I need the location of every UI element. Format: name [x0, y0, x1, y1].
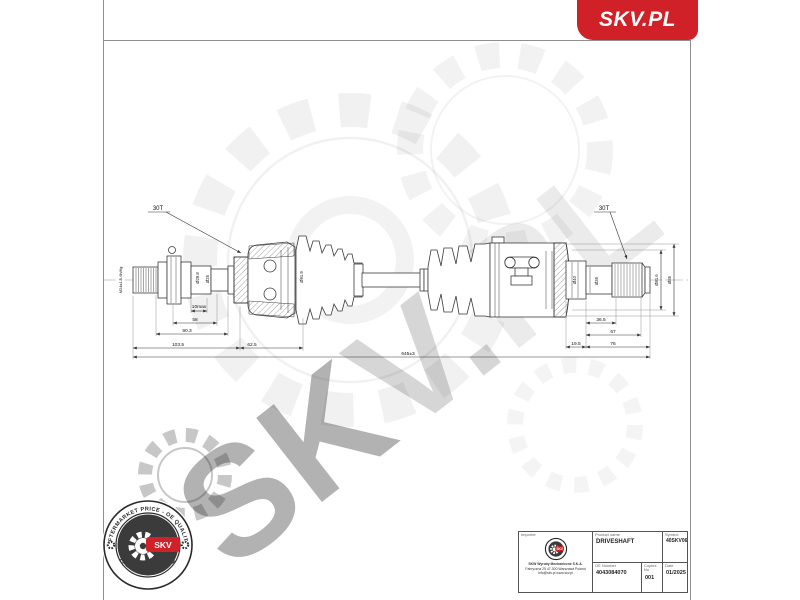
- brand-logo: SKV.PL: [577, 0, 698, 40]
- dim-103-5: 103.5: [172, 342, 184, 348]
- dia-stub-2: Ø35: [594, 276, 599, 285]
- dim-19-5: 19.5: [571, 341, 581, 347]
- brand-logo-text: SKV.PL: [599, 8, 676, 32]
- copies-value: 001: [642, 573, 662, 583]
- title-block: Importer SKV SKW Wyroby Mechaniczne S.K.…: [518, 531, 688, 593]
- dim-67: 67: [610, 329, 616, 335]
- company-line-3: info@skv.pl www.skv.pl: [519, 571, 592, 575]
- dia-shaft-2: Ø25: [205, 274, 210, 283]
- title-block-importer-cell: Importer SKV SKW Wyroby Mechaniczne S.K.…: [519, 532, 592, 592]
- dia-shaft-1: Ø29.8: [195, 272, 200, 284]
- title-block-date-cell: Date 01/2025: [662, 562, 687, 592]
- title-block-copies-cell: Copies No 001: [641, 562, 662, 592]
- dia-stub-1: Ø40: [572, 275, 577, 284]
- title-block-logo-text: SKV: [556, 547, 563, 551]
- oe-number-value: 4043084070: [593, 568, 641, 578]
- quality-badge: AFTERMARKET PRICE - OE QUALITY AUTO PART…: [90, 488, 212, 600]
- dim-58: 58: [192, 317, 198, 323]
- dim-overall-length: 645±3: [401, 351, 415, 357]
- title-block-symbol-cell: Symbol 40SKV065: [662, 532, 687, 562]
- title-block-product-cell: Product name DRIVESHAFT: [592, 532, 662, 562]
- dim-62-5: 62.5: [247, 342, 257, 348]
- dia-boot: Ø91.9: [299, 271, 304, 283]
- badge-center-text: SKV: [154, 540, 172, 550]
- product-name-value: DRIVESHAFT: [593, 537, 662, 548]
- dia-joint-2: Ø85: [667, 275, 672, 284]
- spline-count-left: 30T: [153, 206, 164, 212]
- title-block-oe-cell: OE Number 4043084070: [592, 562, 641, 592]
- badge-side-gear-right-icon: [182, 542, 188, 548]
- dim-90-3: 90.3: [182, 328, 192, 334]
- badge-side-gear-left-icon: [108, 542, 114, 548]
- symbol-value: 40SKV065: [663, 537, 687, 547]
- copies-label: Copies No: [642, 563, 662, 573]
- spline-count-right: 30T: [599, 206, 610, 212]
- dim-10max: 10max: [192, 304, 207, 310]
- title-block-logo: SKV: [544, 537, 568, 561]
- thread-label: M24x1.5-6h/6g: [118, 267, 123, 294]
- dim-36-5: 36.5: [596, 317, 606, 323]
- dia-joint-1: Ø81.6: [654, 274, 659, 286]
- dimension-extension-lines: [133, 244, 679, 359]
- dim-76: 76: [610, 341, 616, 347]
- date-value: 01/2025: [663, 568, 687, 578]
